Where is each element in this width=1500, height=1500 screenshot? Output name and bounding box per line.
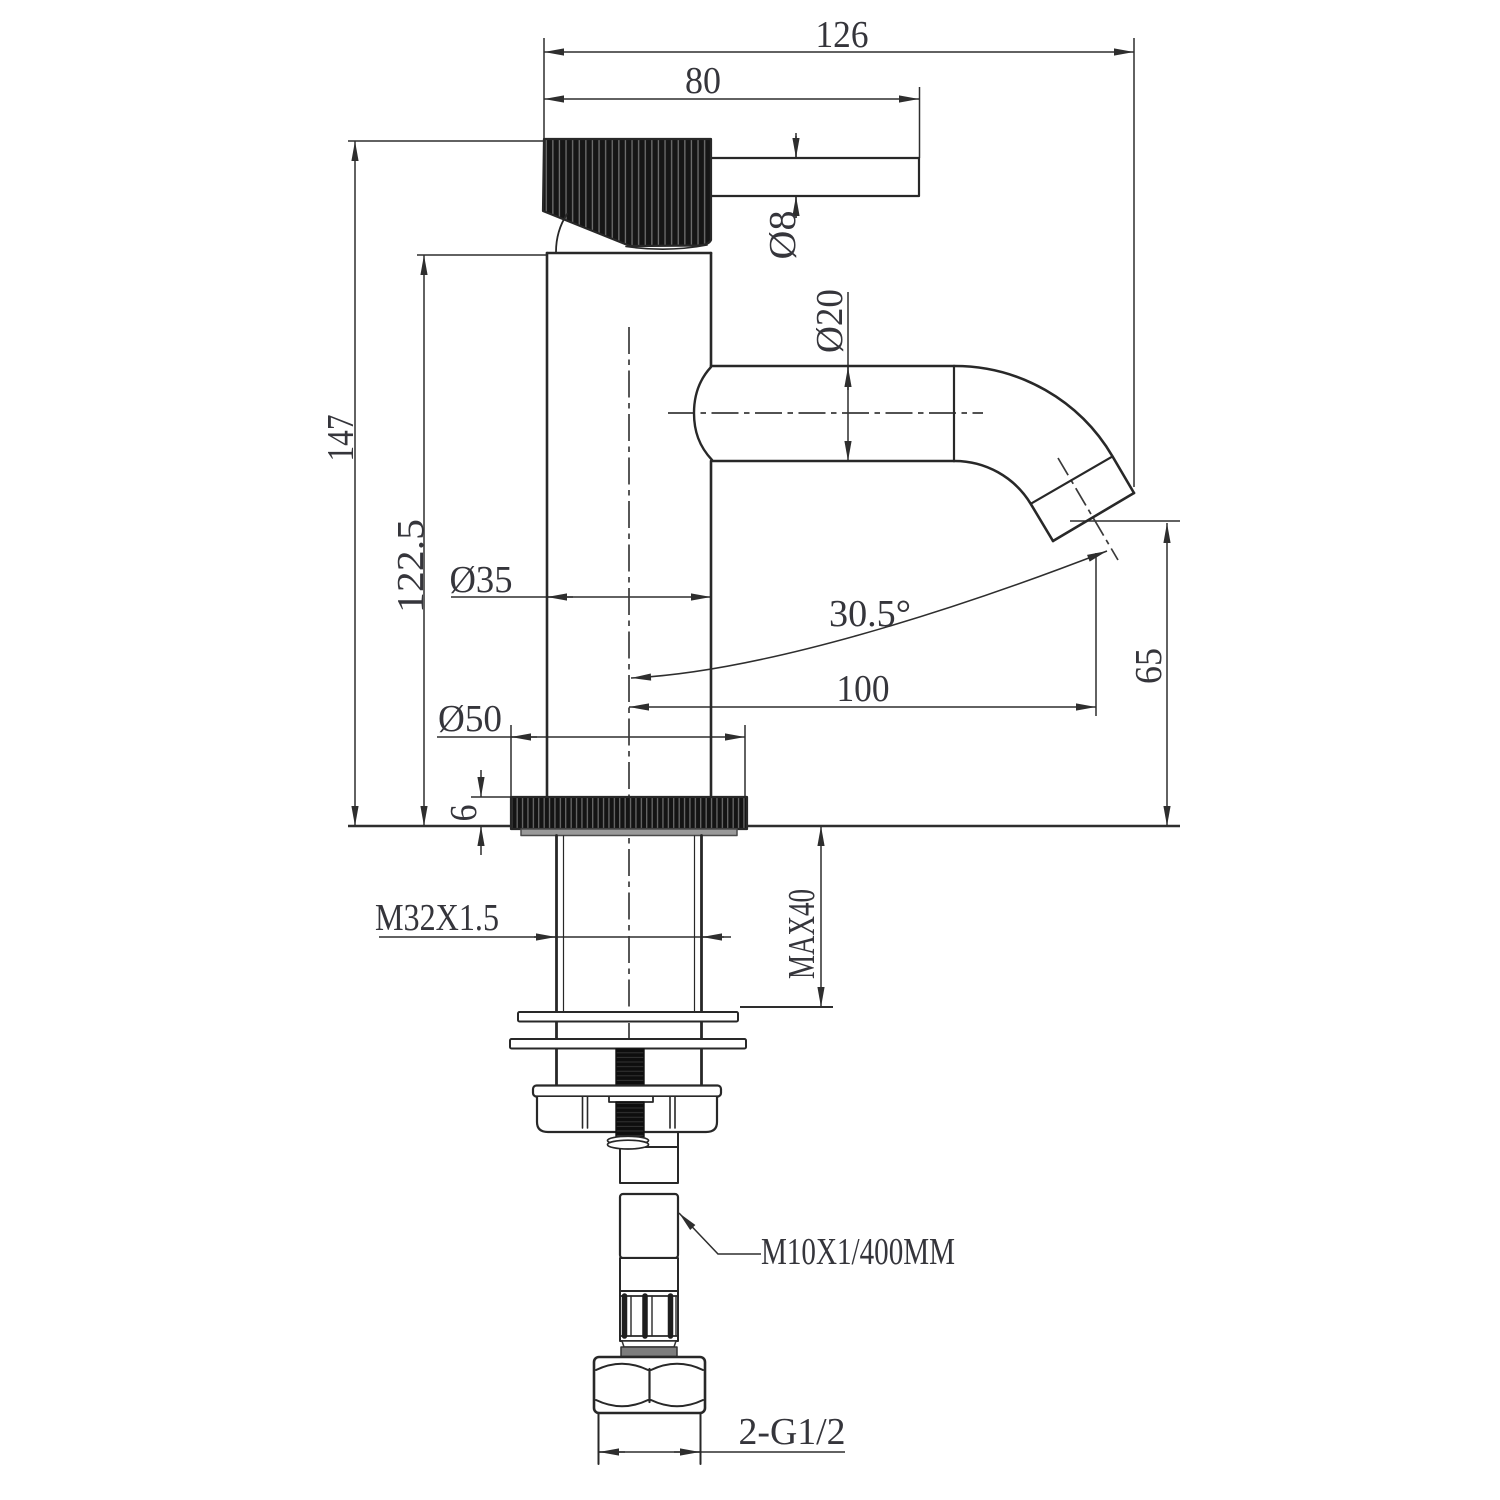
svg-text:Ø20: Ø20 [809,289,851,353]
svg-text:147: 147 [320,415,362,462]
svg-text:2-G1/2: 2-G1/2 [739,1411,846,1453]
svg-text:65: 65 [1128,648,1170,684]
svg-text:Ø50: Ø50 [438,698,502,740]
svg-text:M32X1.5: M32X1.5 [375,897,499,939]
svg-text:M10X1/400MM: M10X1/400MM [761,1231,955,1273]
svg-text:6: 6 [443,805,485,822]
svg-text:30.5°: 30.5° [829,593,911,635]
svg-text:MAX40: MAX40 [781,889,823,979]
svg-text:Ø35: Ø35 [450,559,513,601]
svg-text:126: 126 [816,14,869,56]
svg-text:80: 80 [685,60,721,102]
svg-text:100: 100 [837,668,890,710]
svg-text:122.5: 122.5 [390,519,432,613]
svg-text:Ø8: Ø8 [762,211,804,260]
